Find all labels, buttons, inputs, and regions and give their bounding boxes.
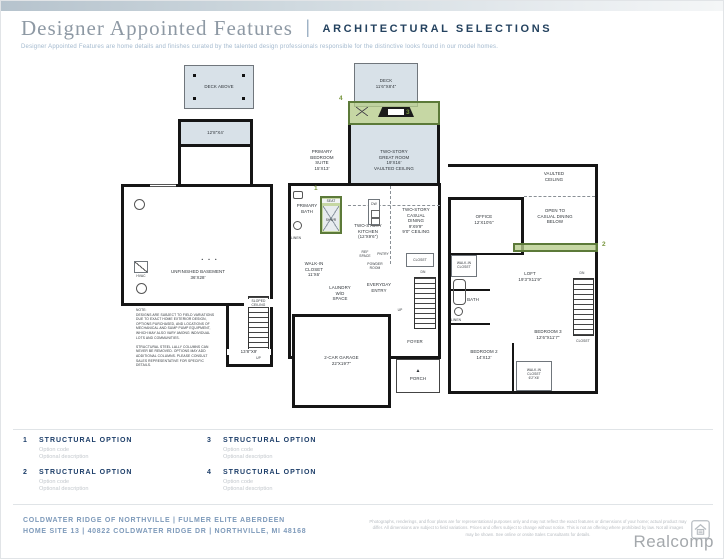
deck-post-icon xyxy=(193,97,196,100)
deck-above-label: DECK ABOVE xyxy=(185,84,253,90)
wall xyxy=(595,164,598,394)
sump-pump-icon xyxy=(134,199,145,210)
legend-item-1-sub: Option code Optional description xyxy=(39,447,88,462)
walk-in-closet-2-label: WALK-IN CLOSET 6'2"X6' xyxy=(517,368,551,380)
legend-item-3-number: 3 xyxy=(207,437,211,444)
water-heater-icon xyxy=(136,283,147,294)
designer-features-sheet: Designer Appointed Features | ARCHITECTU… xyxy=(0,0,724,559)
sink-icon xyxy=(454,307,463,316)
oven-icon xyxy=(371,210,380,218)
up-label: UP xyxy=(248,356,269,360)
deck-above-area: DECK ABOVE xyxy=(184,65,254,109)
stairs-dn xyxy=(573,278,594,336)
legend-item-4-title: STRUCTURAL OPTION xyxy=(223,469,316,476)
pantry-label: PNTRY xyxy=(374,252,392,256)
divider-line xyxy=(13,429,713,430)
option-marker-3: 3 xyxy=(406,109,410,116)
everyday-entry-label: EVERYDAY ENTRY xyxy=(362,282,396,293)
linen-label: LINEN xyxy=(286,236,306,240)
toilet-icon xyxy=(293,221,302,230)
oven-icon xyxy=(371,218,380,226)
legend-item-4-number: 4 xyxy=(207,469,211,476)
dn-label: DN xyxy=(412,270,434,274)
option-2-rail xyxy=(513,243,598,252)
bedroom2-label: BEDROOM 2 14'X12' xyxy=(456,349,512,360)
dn-label: DN xyxy=(571,271,593,275)
open-below-label: OPEN TO CASUAL DINING BELOW xyxy=(526,208,584,225)
wall xyxy=(512,343,514,393)
option-marker-4: 4 xyxy=(339,95,343,102)
legend-item-2-sub: Option code Optional description xyxy=(39,479,88,494)
wall xyxy=(250,145,253,187)
basement-note: NOTE: DESIGNS ARE SUBJECT TO FIELD VARIA… xyxy=(136,308,238,368)
second-floor-plan: VAULTED CEILING OFFICE 12'X10'6" OPEN TO… xyxy=(444,61,616,433)
option-4-fireplace-wall xyxy=(348,101,440,125)
powder-room-label: POWDER ROOM xyxy=(363,262,387,270)
up-label: UP xyxy=(392,308,408,312)
legend-item-3-title: STRUCTURAL OPTION xyxy=(223,437,316,444)
hall-closet: CLOSET xyxy=(406,253,434,267)
deck-post-icon xyxy=(193,74,196,77)
header-description: Designer Appointed Features are home det… xyxy=(21,44,498,50)
legend-item-2-title: STRUCTURAL OPTION xyxy=(39,469,132,476)
page-subtitle-caps: ARCHITECTURAL SELECTIONS xyxy=(323,23,553,35)
option-marker-2: 2 xyxy=(602,241,606,248)
under-deck-dim-label: 12'8"X4' xyxy=(181,130,250,136)
wall xyxy=(448,323,490,325)
sloped-ceiling-label: SLOPED CEILING xyxy=(244,299,273,307)
page-title: Designer Appointed Features xyxy=(21,16,293,40)
kitchen-island: DW xyxy=(368,199,380,225)
window-icon xyxy=(356,107,368,116)
basement-room-label: UNFINISHED BASEMENT 36'X28' xyxy=(142,269,254,280)
columns-dots: • • • xyxy=(154,257,266,263)
laundry-label: LAUNDRY W/D SPACE xyxy=(324,285,356,302)
garage: 2-CAR GARAGE 22'X19'7" xyxy=(292,314,391,408)
window-icon xyxy=(150,184,176,187)
under-deck-area: 12'8"X4' xyxy=(178,119,253,147)
linen-label: LINEN xyxy=(446,318,466,322)
option-1-shower: SEAT SHWR xyxy=(320,196,342,234)
great-room-label: TWO-STORY GREAT ROOM 19'X16' VAULTED CEI… xyxy=(351,149,437,171)
legend-item-4-sub: Option code Optional description xyxy=(223,479,272,494)
casual-dining-label: TWO-STORY CASUAL DINING 9'X9'9" 9'0" CEI… xyxy=(392,207,440,235)
walk-in-closet-2: WALK-IN CLOSET 6'2"X6' xyxy=(516,361,552,391)
wall xyxy=(178,145,181,187)
option-marker-1: 1 xyxy=(314,185,318,192)
walk-in-closet-label: WALK-IN CLOSET 11'X6' xyxy=(294,261,334,278)
sink-icon xyxy=(293,191,303,199)
closet-label: CLOSET xyxy=(407,258,433,262)
shower-seat-label: SEAT xyxy=(322,199,340,203)
primary-suite-label: PRIMARY BEDROOM SUITE 15'X13' xyxy=(296,149,348,171)
kitchen-label: TWO-STORY KITCHEN (12'X9'6") xyxy=(346,223,390,240)
legend-item-2-number: 2 xyxy=(23,469,27,476)
realcomp-watermark: Realcomp xyxy=(633,532,714,552)
fireplace-opening xyxy=(388,109,404,115)
legend-item-3-sub: Option code Optional description xyxy=(223,447,272,462)
title-divider: | xyxy=(305,17,310,37)
page-header: Designer Appointed Features | ARCHITECTU… xyxy=(21,16,552,41)
foyer-label: FOYER xyxy=(398,339,432,345)
community-address: COLDWATER RIDGE OF NORTHVILLE | FULMER E… xyxy=(23,515,306,537)
ref-space-label: REF SPACE xyxy=(356,250,374,258)
office-label: OFFICE 12'X10'6" xyxy=(458,214,510,225)
basement-plan: DECK ABOVE 12'8"X4' • • • UNFINISHED BAS… xyxy=(101,61,293,433)
wall xyxy=(448,164,595,167)
wall xyxy=(448,197,451,394)
legend-item-1-title: STRUCTURAL OPTION xyxy=(39,437,132,444)
hvac-label: HVAC xyxy=(132,274,150,278)
walk-in-closet-small-label: WALK-IN CLOSET xyxy=(452,261,476,269)
primary-bath-label: PRIMARY BATH xyxy=(290,203,324,214)
hvac-icon xyxy=(134,261,148,273)
dw-label: DW xyxy=(369,202,379,206)
top-gradient-bar xyxy=(1,1,723,11)
stairs-dn xyxy=(414,277,436,329)
bath-label: BATH xyxy=(460,297,486,303)
loft-label: LOFT 19'3"X11'9" xyxy=(504,271,556,282)
room-divider xyxy=(348,205,440,206)
garage-label: 2-CAR GARAGE 22'X19'7" xyxy=(295,355,388,366)
deck-label: DECK 11'6"X8'4" xyxy=(355,78,417,89)
deck-post-icon xyxy=(242,97,245,100)
vaulted-ceiling-label: VAULTED CEILING xyxy=(530,171,578,182)
wall xyxy=(448,197,524,200)
legend-item-1-number: 1 xyxy=(23,437,27,444)
wall xyxy=(448,391,598,394)
porch: ▲ PORCH xyxy=(396,359,440,393)
deck-post-icon xyxy=(242,74,245,77)
main-floor-plan: DECK 11'6"X8'4" 4 3 TWO-STORY GREAT ROOM… xyxy=(284,61,448,433)
vaulted-ceiling-line xyxy=(524,196,595,197)
walk-in-closet-small: WALK-IN CLOSET xyxy=(451,255,477,277)
shwr-label: SHWR xyxy=(322,218,340,222)
closet-label: CLOSET xyxy=(572,339,594,343)
porch-label: PORCH xyxy=(397,376,439,382)
bedroom3-label: BEDROOM 3 12'6"X11'7" xyxy=(522,329,574,340)
entry-arrow-icon: ▲ xyxy=(397,368,439,374)
divider-line xyxy=(13,504,713,505)
